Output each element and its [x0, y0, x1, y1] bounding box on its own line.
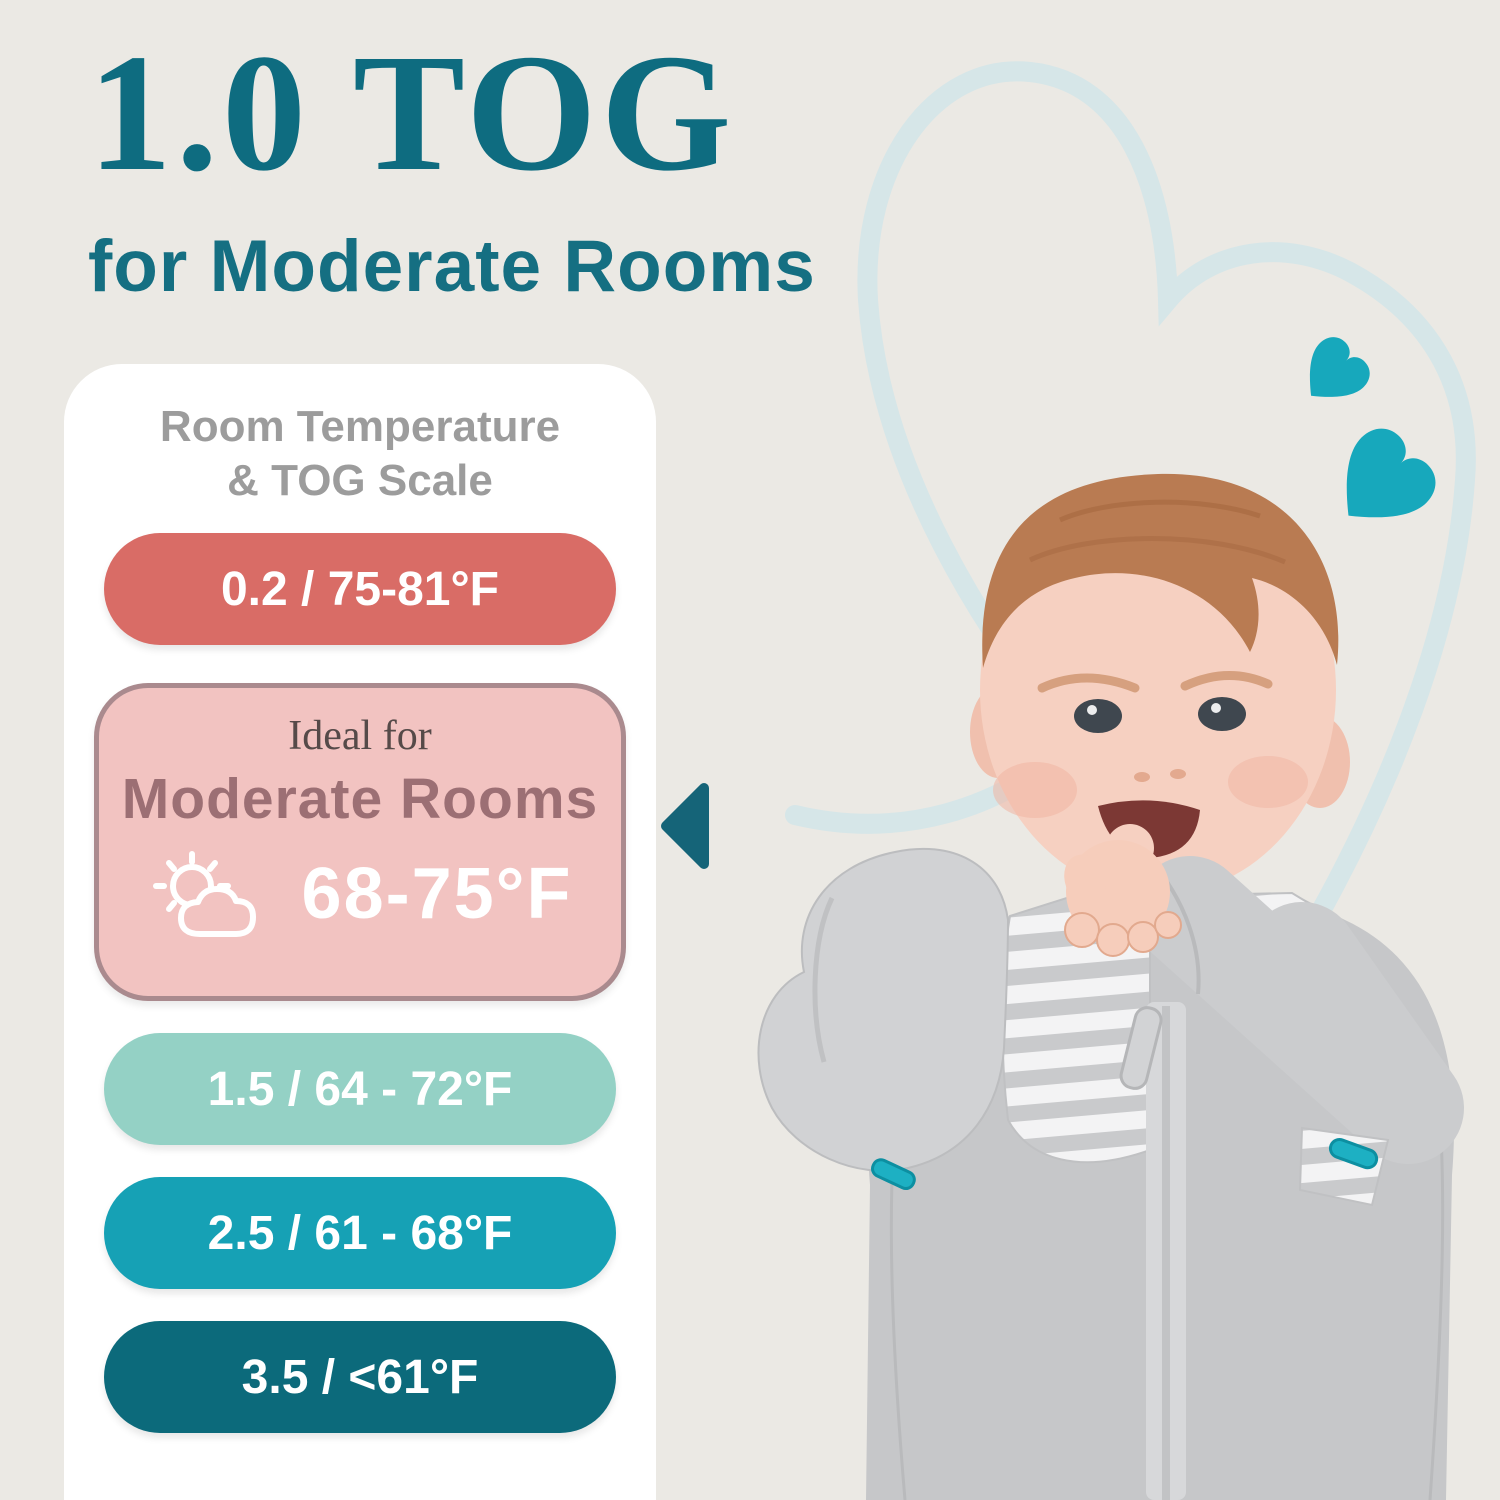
tog-scale-card: Room Temperature & TOG Scale 0.2 / 75-81…: [64, 364, 656, 1500]
temperature-row: 68-75°F: [148, 846, 573, 942]
card-heading: Room Temperature & TOG Scale: [64, 400, 656, 507]
tog-row-1-5: 1.5 / 64 - 72°F: [104, 1033, 616, 1145]
swaddle-wing-left: [758, 849, 1008, 1171]
active-row-pointer-icon: [658, 782, 714, 874]
page-subtitle: for Moderate Rooms: [88, 225, 816, 308]
tog-row-1-5-label: 1.5 / 64 - 72°F: [208, 1062, 513, 1117]
tog-row-3-5-label: 3.5 / <61°F: [242, 1350, 479, 1405]
sun-behind-cloud-icon: [148, 846, 276, 942]
tog-row-0-2-label: 0.2 / 75-81°F: [221, 562, 499, 617]
headline-block: 1.0 TOG for Moderate Rooms: [88, 28, 816, 308]
moderate-rooms-label: Moderate Rooms: [122, 766, 598, 832]
page-title: 1.0 TOG: [88, 28, 816, 199]
tog-row-2-5: 2.5 / 61 - 68°F: [104, 1177, 616, 1289]
temperature-value: 68-75°F: [302, 853, 573, 935]
infographic-root: 1.0 TOG for Moderate Rooms Room Temperat…: [0, 0, 1500, 1500]
tog-row-0-2: 0.2 / 75-81°F: [104, 533, 616, 645]
baby-head: [980, 474, 1338, 895]
card-heading-line1: Room Temperature: [64, 400, 656, 454]
tog-row-2-5-label: 2.5 / 61 - 68°F: [208, 1206, 513, 1261]
ideal-for-label: Ideal for: [288, 712, 431, 760]
tog-row-1-0-highlight: Ideal for Moderate Rooms 68-75°F: [94, 683, 626, 1001]
card-heading-line2: & TOG Scale: [64, 454, 656, 508]
tog-row-3-5: 3.5 / <61°F: [104, 1321, 616, 1433]
